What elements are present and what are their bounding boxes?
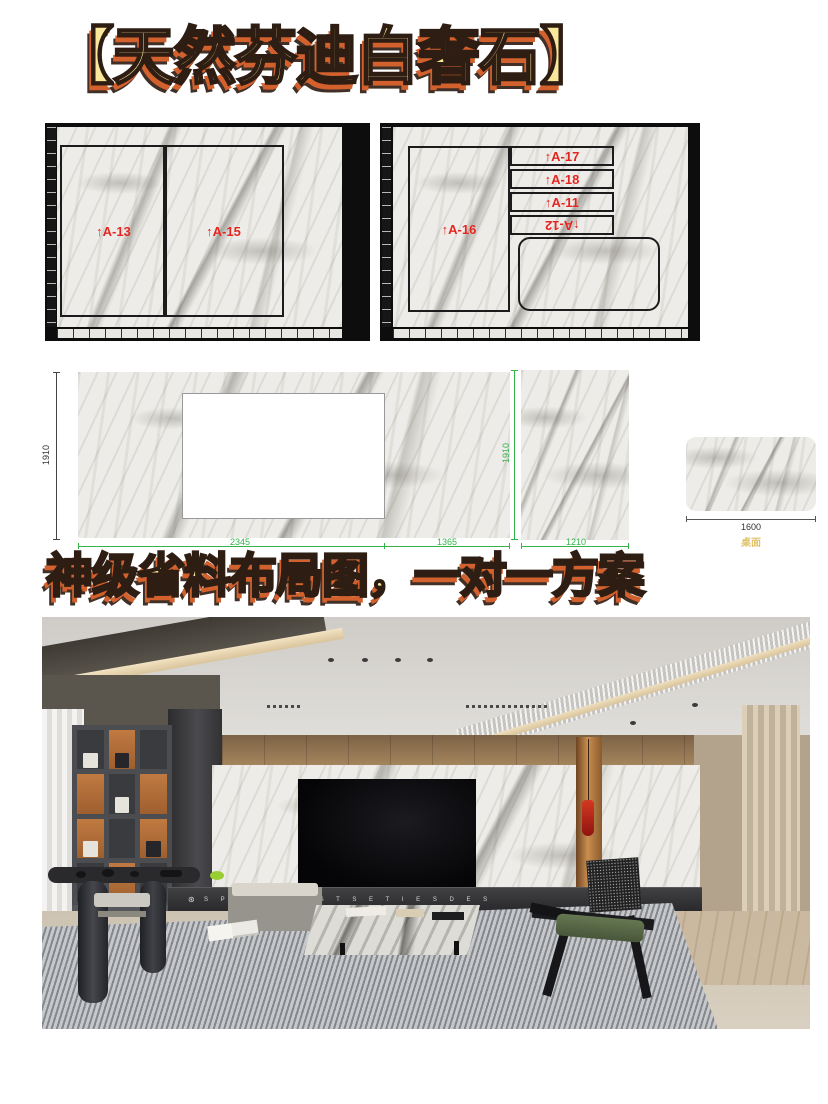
- dim-tick: [815, 516, 816, 522]
- book: [396, 909, 424, 917]
- dim-tick: [53, 539, 60, 540]
- table-leg: [340, 943, 345, 955]
- dim-label-left-height: 1910: [41, 445, 51, 465]
- tea-tray: [160, 870, 182, 877]
- dim-label-w2: 1365: [437, 537, 457, 547]
- cut-strip-a11: ↑A-11: [510, 192, 614, 212]
- cut-label-a11: ↑A-11: [545, 195, 579, 210]
- dim-line-right-height: [514, 370, 515, 540]
- dim-tick: [511, 539, 518, 540]
- red-pendant-light: [582, 800, 594, 836]
- cut-region-a15: ↑A-15: [163, 145, 284, 317]
- cut-region-a13: ↑A-13: [60, 145, 167, 317]
- spotlight: [362, 658, 368, 662]
- interior-render: ⊛ S P A C E A E S T S E T I E S D E S: [42, 617, 810, 1029]
- dim-label-w1: 2345: [230, 537, 250, 547]
- shelf-cell: [109, 819, 136, 858]
- marble-coffee-table: [304, 905, 480, 955]
- tea-set: [130, 871, 139, 877]
- cut-label-a18: ↑A-18: [545, 172, 580, 187]
- shelf-cell: [77, 730, 104, 769]
- slab2-bottom-ruler: [393, 329, 688, 338]
- cut-strip-a17: ↑A-17: [510, 146, 614, 166]
- slab1-left-ruler: [47, 127, 56, 327]
- shelf-decor: [146, 841, 161, 857]
- small-bench: [94, 893, 150, 907]
- cut-label-a17: ↑A-17: [545, 149, 580, 164]
- accent-chair: [530, 859, 680, 999]
- cut-label-a12: ↑A-12: [545, 218, 580, 233]
- spotlight: [395, 658, 401, 662]
- shelf-decor: [83, 841, 98, 857]
- slab1-bottom-ruler: [57, 329, 342, 338]
- tea-table: [48, 867, 200, 883]
- shelf-cell: [109, 774, 136, 813]
- slab2-marble: ↑A-16 ↑A-17 ↑A-18 ↑A-11 ↑A-12: [393, 127, 688, 327]
- cabinet-logo-icon: ⊛: [188, 895, 195, 904]
- dim-tick: [686, 516, 687, 522]
- side-panel-elevation: [521, 370, 629, 540]
- wall-elevation: [78, 372, 510, 538]
- tabletop-caption: 桌面: [741, 534, 761, 549]
- tray: [432, 912, 464, 920]
- slot-diffuser: [267, 705, 303, 708]
- page-title: 【天然芬迪白奢石】: [52, 24, 601, 92]
- table-leg: [454, 941, 459, 955]
- television: [298, 779, 476, 891]
- book: [346, 906, 386, 917]
- cut-label-a16: ↑A-16: [442, 222, 477, 237]
- shelf-decor: [83, 753, 98, 769]
- cut-label-a13: ↑A-13: [96, 224, 131, 239]
- chair-backrest: [586, 857, 642, 913]
- shelf-cell: [140, 774, 167, 813]
- dim-tick: [53, 372, 60, 373]
- dim-tick: [511, 370, 518, 371]
- cut-label-a15: ↑A-15: [206, 224, 241, 239]
- spotlight: [328, 658, 334, 662]
- slab-layout-2: ↑A-16 ↑A-17 ↑A-18 ↑A-11 ↑A-12: [380, 123, 700, 341]
- pendant-cable: [588, 739, 589, 801]
- tea-set: [102, 869, 114, 877]
- spotlight: [427, 658, 433, 662]
- slab-layout-1: ↑A-13 ↑A-15: [45, 123, 370, 341]
- cut-region-rounded: [518, 237, 660, 311]
- tv-cutout: [182, 393, 385, 519]
- slab2-left-ruler: [382, 127, 391, 327]
- shelf-cell: [140, 730, 167, 769]
- dim-line-left-height: [56, 372, 57, 540]
- poster-page: 【天然芬迪白奢石】 ↑A-13 ↑A-15 ↑A-16 ↑A-17 ↑A-18: [0, 0, 828, 1104]
- dim-line-table-width: [686, 519, 816, 520]
- shelf-decor: [115, 753, 130, 769]
- curtain: [742, 705, 800, 913]
- spotlight: [692, 703, 698, 707]
- shelf-decor: [115, 797, 130, 813]
- green-fruit: [210, 871, 224, 880]
- cut-region-a16: ↑A-16: [408, 146, 510, 312]
- tabletop-slab: [686, 437, 816, 511]
- dim-label-table-width: 1600: [741, 522, 761, 532]
- slab1-marble: ↑A-13 ↑A-15: [57, 127, 342, 327]
- dim-label-right-height: 1910: [501, 443, 511, 463]
- shelf-cell: [77, 774, 104, 813]
- tea-set: [76, 871, 86, 878]
- bench-cushion: [232, 883, 318, 896]
- cut-strip-a12: ↑A-12: [510, 215, 614, 235]
- shelf-cell: [140, 819, 167, 858]
- subtitle: 神级省料布局图，一对一方案: [46, 550, 644, 602]
- shelf-cell: [77, 819, 104, 858]
- cut-strip-a18: ↑A-18: [510, 169, 614, 189]
- spotlight: [630, 721, 636, 725]
- slot-diffuser: [466, 705, 548, 708]
- shelf-cell: [109, 730, 136, 769]
- dim-label-w3: 1210: [566, 537, 586, 547]
